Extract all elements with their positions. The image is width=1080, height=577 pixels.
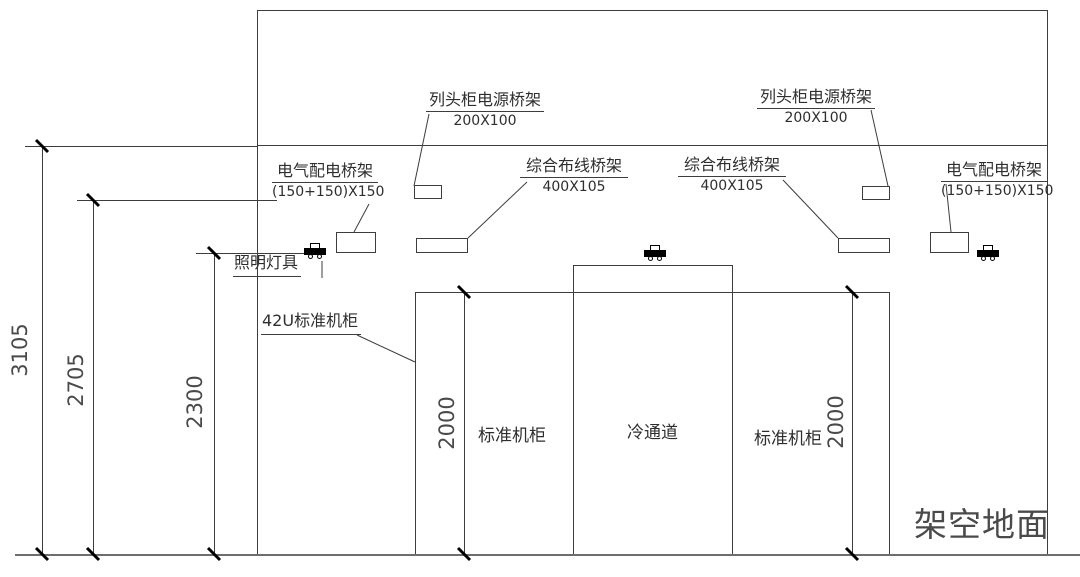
callout-power-tray-right: 列头柜电源桥架 200X100 <box>757 87 875 127</box>
rack-42u-label: 42U标准机柜 <box>261 311 361 335</box>
dimension-value-2000-left: 2000 <box>435 383 459 463</box>
electrical-tray-rect-left <box>336 232 376 253</box>
callout-title: 列头柜电源桥架 <box>757 87 875 109</box>
cad-drawing-canvas: 列头柜电源桥架 200X100 列头柜电源桥架 200X100 电气配电桥架 (… <box>0 0 1080 577</box>
callout-cabling-tray-left: 综合布线桥架 400X105 <box>520 156 628 196</box>
callout-title: 列头柜电源桥架 <box>426 90 544 112</box>
extension-line-3105 <box>25 146 257 147</box>
leader-cabling-tray-right <box>783 180 838 238</box>
power-tray-rect-left <box>414 185 442 199</box>
ceiling-line <box>257 145 1048 146</box>
callout-size: (150+150)X150 <box>272 183 378 201</box>
dimension-line-2300 <box>214 253 215 554</box>
callout-title: 综合布线桥架 <box>678 155 786 177</box>
light-fixture-icon <box>977 245 999 262</box>
light-fixture-icon <box>304 243 326 260</box>
callout-size: 400X105 <box>678 177 786 195</box>
dimension-value-3105: 3105 <box>8 310 32 390</box>
cold-aisle-top-line <box>573 265 733 266</box>
room-top-line <box>257 10 1048 11</box>
cold-aisle-right-edge <box>732 265 733 554</box>
dimension-value-2000-right: 2000 <box>824 382 848 462</box>
callout-power-tray-left: 列头柜电源桥架 200X100 <box>426 90 544 130</box>
light-lamps <box>977 256 999 261</box>
dimension-line-2000-left <box>464 292 465 554</box>
callout-size: 200X100 <box>757 109 875 127</box>
dimension-ticks <box>36 140 858 560</box>
dimension-value-2300: 2300 <box>183 362 207 442</box>
extension-line-2705 <box>77 200 277 201</box>
dimension-line-3105 <box>42 146 43 554</box>
dimension-line-2000-right <box>852 292 853 554</box>
light-lamps <box>644 256 666 261</box>
leader-electrical-tray-left <box>354 204 369 232</box>
cabinet-top-line <box>415 292 890 293</box>
lighting-label: 照明灯具 <box>233 253 301 277</box>
leader-cabling-tray-left <box>468 182 527 238</box>
callout-electrical-tray-right: 电气配电桥架 (150+150)X150 <box>941 160 1047 200</box>
callout-cabling-tray-right: 综合布线桥架 400X105 <box>678 155 786 195</box>
electrical-tray-rect-right <box>930 232 969 253</box>
cold-aisle-left-edge <box>573 265 574 554</box>
room-right-wall <box>1047 10 1048 556</box>
leader-rack-42u <box>357 335 415 362</box>
cabling-tray-rect-left <box>416 238 468 253</box>
cabinet-left-label: 标准机柜 <box>472 421 552 446</box>
callout-size: 200X100 <box>426 112 544 130</box>
callout-title: 电气配电桥架 <box>941 160 1047 182</box>
callout-size: 400X105 <box>520 178 628 196</box>
cabinet-right-label: 标准机柜 <box>748 424 828 449</box>
light-lamps <box>304 254 326 259</box>
cabling-tray-rect-right <box>838 238 890 253</box>
light-fixture-icon <box>644 245 666 262</box>
cabinet-right-edge <box>889 292 890 554</box>
raised-floor-label: 架空地面 <box>914 498 1050 546</box>
floor-line <box>15 554 1080 556</box>
callout-title: 综合布线桥架 <box>520 156 628 178</box>
power-tray-rect-right <box>862 186 890 200</box>
callout-size: (150+150)X150 <box>941 182 1047 200</box>
leader-and-tick-overlay <box>0 0 1080 577</box>
dimension-value-2705: 2705 <box>64 340 88 420</box>
callout-electrical-tray-left: 电气配电桥架 (150+150)X150 <box>272 161 378 201</box>
dimension-line-2705 <box>93 200 94 554</box>
leader-lines <box>322 110 951 362</box>
cold-aisle-label: 冷通道 <box>610 418 695 443</box>
callout-title: 电气配电桥架 <box>272 161 378 183</box>
room-left-wall <box>257 10 258 556</box>
cabinet-left-edge <box>415 292 416 554</box>
